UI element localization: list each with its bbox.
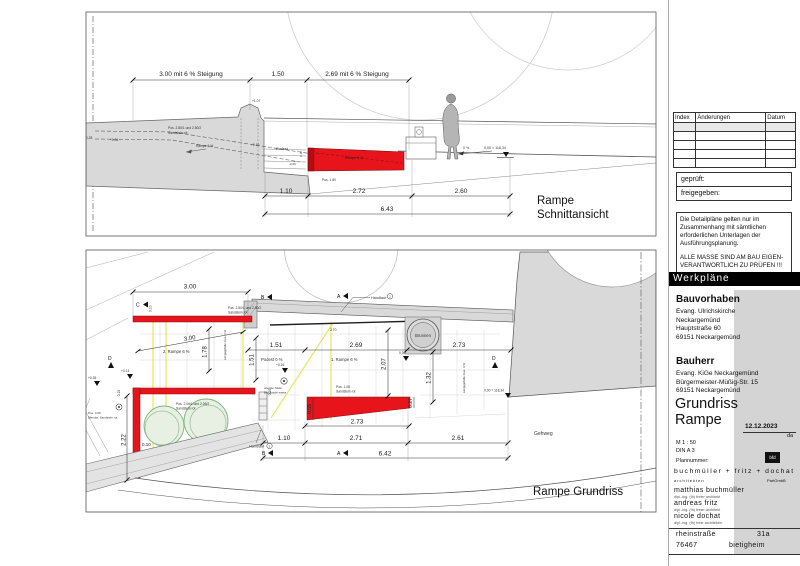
ramp-red-label: Rampe 6 %	[345, 156, 365, 160]
step-block	[259, 392, 267, 420]
dim-label: 3.00 mit 6 % Steigung	[159, 71, 223, 78]
datum-label: 0,00 = 118,34	[484, 389, 504, 393]
level-label: +0.14	[121, 369, 130, 373]
section-view: 3.00 mit 6 % Steigung 1.50 2.69 mit 6 % …	[84, 0, 680, 233]
slope-label: 0 %	[463, 146, 470, 150]
project-line: 69151 Neckargemünd	[676, 334, 740, 343]
address-number: 31a	[757, 531, 770, 538]
firm-name: buchmüller + fritz + dochat	[674, 468, 795, 475]
released-label: freigegeben:	[677, 186, 791, 200]
format-label: DIN A 3	[676, 448, 695, 454]
dim-label: 2.61	[452, 435, 465, 442]
slope-note: Längsgefälle max. 3 %	[462, 362, 466, 393]
partner-name: matthias buchmüller	[674, 487, 744, 494]
divider	[669, 554, 800, 555]
pos-label: Pos. 2.06/1 und 2.06/2	[176, 402, 209, 406]
dim-label: 0.10	[149, 305, 153, 312]
client-label: Bauherr	[676, 356, 714, 367]
dim-label: 2.73	[351, 419, 364, 426]
pos-label: Sandstein rot	[176, 407, 196, 411]
pos-label: Blendst. Sandstein rot	[88, 416, 118, 420]
plan-title: Rampe Grundriss	[533, 486, 623, 498]
dim-label: 2.07	[382, 358, 388, 370]
podest-label: Podest 0 %	[261, 357, 283, 362]
scale-label: M 1 : 50	[676, 440, 696, 446]
pos-label: Sandstein rot	[228, 311, 248, 315]
address-street: rheinstraße	[676, 531, 716, 538]
client-line: 69151 Neckargemünd	[676, 387, 758, 396]
dim-label: 3.00	[184, 335, 197, 343]
ramp-label: 2. Rampe 6 %	[163, 349, 190, 354]
dim-label: 3.70	[330, 328, 337, 332]
dim-label: 1.32	[427, 372, 433, 384]
dim-label: 0.27	[408, 398, 414, 408]
fountain-label: Brunnen	[415, 333, 432, 338]
category-bar: Werkpläne	[669, 272, 800, 286]
level-label: +0.28	[84, 136, 93, 140]
plan-view: 3.00 0.10 C B A Handlauf 1 Pos. 2.80/1 u…	[86, 137, 687, 512]
project-label: Bauvorhaben	[676, 294, 740, 305]
dim-label: 3.00	[184, 284, 197, 291]
section-marker-label: A	[337, 294, 341, 300]
firm-subtitle: architekten	[674, 478, 705, 483]
note-label: oberste Stufe	[264, 386, 282, 390]
handrail-label: Handlauf	[371, 296, 387, 300]
tree-arcs	[285, 0, 680, 120]
section-marker-label: D	[108, 356, 112, 362]
section-marker-label: D	[492, 356, 496, 362]
partner-title: dipl.-ing. (fh) freie architektin	[674, 521, 722, 525]
terrain-lines	[86, 252, 214, 340]
dim-label: 1.10	[278, 435, 291, 442]
pos-label: Pos. 1.80	[322, 178, 336, 182]
ramp-hidden-label: Rampe 6 %	[196, 144, 213, 148]
left-hatch	[86, 398, 108, 456]
revision-col-date: Datum	[766, 113, 796, 123]
dim-label: 6.42	[379, 451, 392, 458]
dim-label: 2.73	[453, 342, 466, 349]
revision-table: Index Änderungen Datum	[673, 112, 796, 168]
pos-label: Pos. 3.06	[88, 411, 101, 415]
level-label: 0,00	[399, 351, 406, 355]
firm-logo: bfd	[765, 452, 780, 463]
drawing-title: Grundriss	[675, 396, 738, 412]
pos-label: Pos. 2.80/1 und 2.80/2	[168, 126, 201, 130]
level-label: +1.07	[252, 99, 261, 103]
level-label: +0.16	[251, 143, 260, 147]
section-marker-label: A	[337, 451, 341, 457]
address-zip: 76467	[676, 542, 697, 549]
revision-col-index: Index	[674, 113, 696, 123]
section-marker-label: C	[136, 303, 140, 309]
pos-label: Pos. 2.80/1 und 2.80/2	[228, 306, 261, 310]
level-label: +0.34	[110, 138, 119, 142]
datum-marker	[458, 151, 514, 158]
drawing-title: Rampe	[675, 412, 722, 428]
section-title: Rampe	[537, 195, 574, 207]
dim-label: 1.50	[272, 71, 285, 78]
datum-label: 0,00 = 118,34	[484, 146, 506, 150]
note-box: Die Detailpläne gelten nur im Zusammenha…	[676, 212, 792, 274]
address-city: bietigheim	[729, 542, 765, 549]
pos-label: Pos. 1.08	[336, 385, 350, 389]
partner-title: dipl.-ing. (fh) freier architekt	[674, 495, 720, 499]
dim-label: 0.10	[299, 151, 303, 157]
dim-label: 0.10	[142, 442, 151, 447]
podest-label: Podest	[276, 147, 289, 151]
level-label: +0.16	[276, 363, 285, 367]
plan-number-label: Plannummer:	[676, 458, 709, 464]
fountain-section	[406, 127, 436, 159]
handrail-line	[270, 321, 420, 325]
section-title: Schnittansicht	[537, 209, 609, 221]
note-text: ALLE MASSE SIND AM BAU EIGEN-VERANTWORTL…	[680, 254, 788, 270]
partner-name: nicole dochat	[674, 513, 720, 520]
slope-note: Längsgefälle max. 3 %	[223, 329, 227, 360]
handrail-ref-number: 1	[389, 295, 391, 299]
dim-label: 0.55	[307, 404, 313, 414]
dim-label: 1.10	[280, 188, 293, 195]
client-line: Bürgermeister-Müßig-Str. 15	[676, 379, 758, 388]
pos-label: Sandstein rot	[168, 131, 188, 135]
client-line: Evang. KiGe Neckargemünd	[676, 370, 758, 379]
dim-label: 1.51	[250, 354, 256, 366]
revision-col-changes: Änderungen	[696, 113, 766, 123]
dim-label: 1.51	[270, 342, 283, 349]
wall-band	[252, 299, 513, 322]
level-label: -0.26	[289, 162, 296, 166]
drawing-date: 12.12.2023	[745, 423, 778, 430]
dim-label: 2.72	[353, 188, 366, 195]
approval-box: geprüft: freigegeben:	[676, 172, 792, 201]
checked-label: geprüft:	[677, 173, 791, 186]
dim-label: 6.43	[381, 206, 394, 213]
dim-label: 2.69	[350, 342, 363, 349]
drawing-sheet: 3.00 mit 6 % Steigung 1.50 2.69 mit 6 % …	[0, 0, 800, 566]
titleblock-gray-column	[734, 290, 800, 554]
sidewalk-label: Gehweg	[534, 431, 553, 437]
dim-label: 2.22	[122, 434, 128, 446]
handrail-label: Handlauf	[249, 445, 265, 449]
firm-type: PartGmbB	[767, 478, 786, 483]
partner-name: andreas fritz	[674, 500, 718, 507]
dim-label: 0.10	[117, 390, 121, 397]
dim-label: 2.71	[350, 435, 363, 442]
divider	[669, 528, 800, 529]
dim-label: 2.60	[455, 188, 468, 195]
dim-label: 1.78	[203, 346, 209, 358]
project-line: Hauptstraße 60	[676, 325, 740, 334]
dim-label: 0.10	[268, 389, 272, 396]
partner-title: dipl.-ing. (fh) freier architekt	[674, 508, 720, 512]
pos-label: Sandstein rot	[336, 390, 356, 394]
project-line: Neckargemünd	[676, 317, 740, 326]
title-block: Index Änderungen Datum geprüft: freigege…	[668, 0, 800, 566]
level-label: +0.35	[88, 376, 97, 380]
drawing-initials: da	[787, 433, 793, 439]
project-line: Evang. Ulrichskirche	[676, 308, 740, 317]
dim-label: 2.69 mit 6 % Steigung	[325, 71, 389, 78]
handrail-ref-number: 2	[269, 444, 271, 448]
note-text: Die Detailpläne gelten nur im Zusammenha…	[680, 216, 788, 248]
ramp-red-wedge	[307, 397, 410, 420]
ramp-label: 1. Rampe 6 %	[331, 357, 358, 362]
person-figure	[443, 94, 460, 159]
